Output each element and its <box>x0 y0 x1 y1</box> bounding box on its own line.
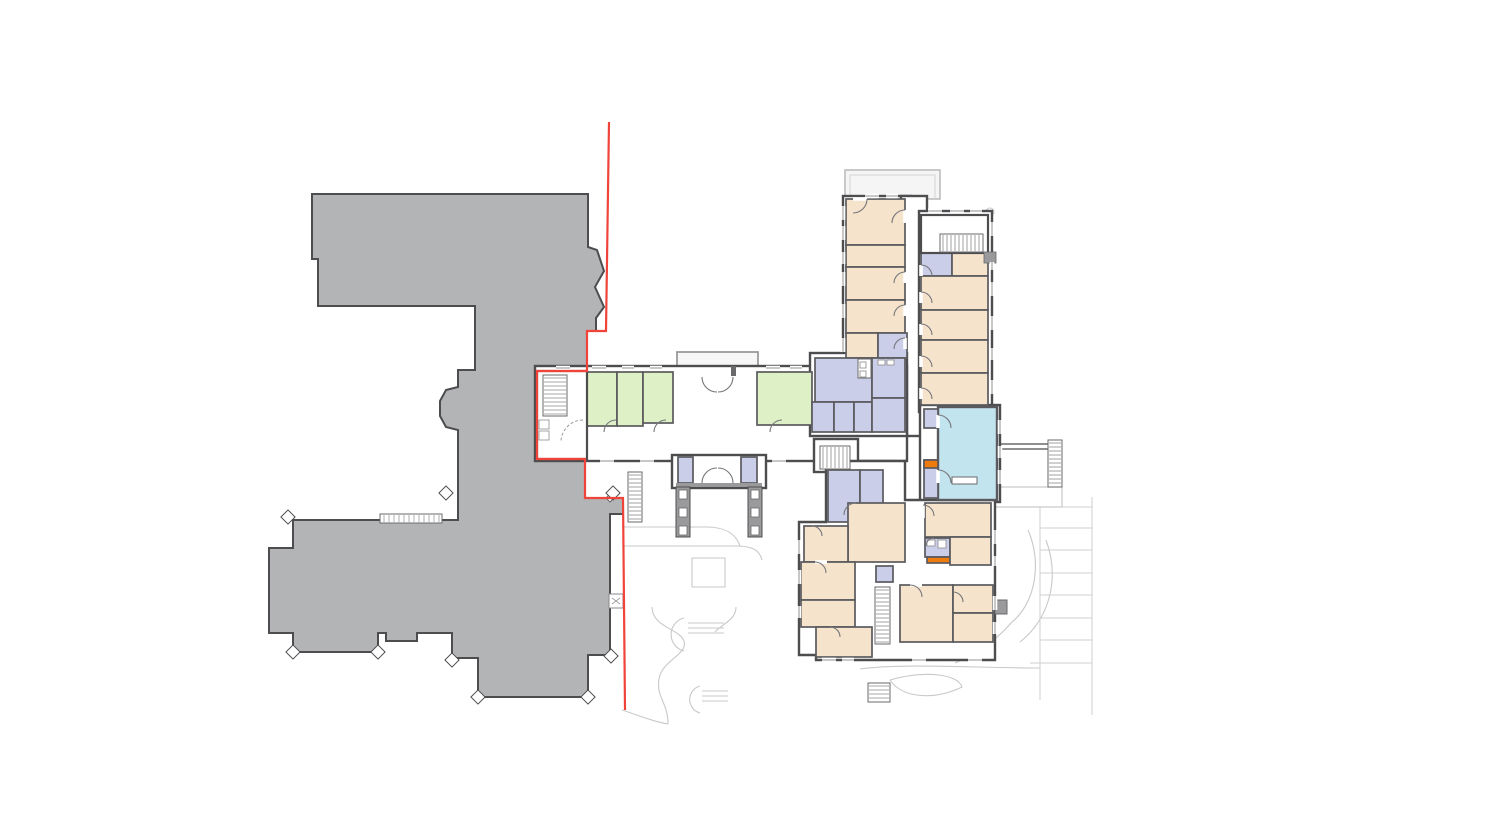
service-room <box>924 409 938 428</box>
kitchen-appliance <box>860 362 866 368</box>
service-room <box>878 333 907 358</box>
communal-room <box>643 372 673 423</box>
bedroom-room <box>953 613 993 642</box>
floor-plan-canvas <box>0 0 1500 833</box>
communal-room <box>617 372 643 426</box>
service-room <box>921 253 952 276</box>
bedroom-room <box>801 600 855 627</box>
bedroom-room <box>950 537 991 565</box>
kitchen-appliance <box>887 360 894 365</box>
service-room <box>834 402 854 432</box>
bedroom-room <box>921 310 988 340</box>
garden-path-line <box>652 607 684 724</box>
garden-path-line <box>702 691 728 701</box>
porch-column <box>751 508 759 517</box>
bedroom-room <box>846 267 905 300</box>
garden-path-line <box>1012 530 1035 622</box>
garden-path-line <box>1020 540 1052 642</box>
bathroom-fixture <box>938 540 946 548</box>
garden-path-line <box>692 558 725 587</box>
porch-column <box>679 526 687 535</box>
bedroom-room <box>804 526 848 562</box>
bedroom-room <box>921 276 988 310</box>
bedroom-room <box>846 199 905 245</box>
bedroom-room <box>846 300 905 333</box>
bedroom-room <box>921 373 988 405</box>
bedroom-room <box>801 562 855 600</box>
bedroom-room <box>846 333 878 358</box>
porch-wall-stub <box>731 366 736 376</box>
service-room <box>854 402 872 432</box>
garden-path-line <box>890 674 962 695</box>
service-room <box>678 457 693 483</box>
bedroom-room <box>848 503 905 562</box>
porch-column <box>679 490 687 499</box>
service-room <box>812 402 834 432</box>
garden-path-line <box>671 618 684 651</box>
garden-path-line <box>860 666 1040 669</box>
bedroom-room <box>952 253 988 276</box>
communal-room <box>586 372 617 426</box>
communal-room <box>757 372 812 425</box>
south-porch-rail <box>676 483 762 487</box>
bedroom-room <box>921 340 988 373</box>
stair-flight <box>875 587 890 644</box>
stair-flight <box>628 472 642 522</box>
highlight-room <box>927 557 950 563</box>
highlight-room <box>924 460 938 468</box>
garden-path-line <box>622 710 668 724</box>
bedroom-room <box>816 627 872 657</box>
kitchen-appliance <box>860 371 866 377</box>
lounge-room <box>938 407 997 500</box>
service-room <box>872 398 905 432</box>
chimney-pilaster <box>984 252 996 263</box>
kitchen-appliance <box>878 360 885 365</box>
service-room <box>876 566 893 582</box>
bedroom-room <box>953 585 993 613</box>
porch-column <box>679 508 687 517</box>
bedroom-room <box>900 585 953 642</box>
survey-diamond-marker <box>439 486 453 500</box>
garden-path-line <box>688 623 724 633</box>
south-porch-layer <box>676 483 762 537</box>
garden-path-line <box>690 686 700 713</box>
lounge-table <box>952 477 977 484</box>
bedroom-room <box>925 503 991 537</box>
service-room <box>741 457 757 483</box>
bedroom-room <box>846 245 905 267</box>
porch-column <box>751 490 759 499</box>
stair-flight <box>940 234 983 252</box>
floor-plan-page <box>0 0 1500 833</box>
porch-column <box>751 526 759 535</box>
